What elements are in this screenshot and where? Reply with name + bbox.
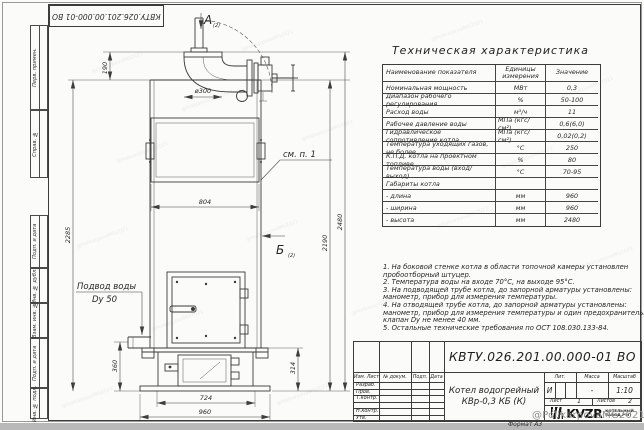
format-label: Формат А3	[508, 421, 542, 428]
stamp-cell-podp-data-1: Подп. и дата	[30, 215, 48, 268]
tech-row-value: 250	[546, 142, 598, 154]
stamp-cell-sprav-no: Справ. №	[30, 110, 48, 178]
tb-header-dokum: № докум.	[379, 372, 411, 382]
tech-row-value: 0,6(6,0)	[546, 118, 598, 130]
watermark-text: @PolikarpovaMG2021	[532, 410, 644, 421]
tech-row-value: 0,3	[546, 82, 598, 94]
tech-row-value: 70-95	[546, 166, 598, 178]
note-line: 5. Остальные технические требования по О…	[383, 325, 639, 333]
tech-row-name: - высота	[383, 214, 496, 226]
tech-row-units: МВт	[496, 82, 546, 94]
tb-mass-label: Масса	[576, 372, 608, 382]
tb-mass-value: -	[576, 382, 608, 398]
tb-sheet-label: Лист	[544, 398, 568, 405]
tech-row-units: %	[496, 154, 546, 166]
tech-row-value: 11	[546, 106, 598, 118]
tech-row-name: - длина	[383, 190, 496, 202]
stamp-cell-perv-primen: Перв. примен.	[30, 25, 48, 110]
tech-row-name: - ширина	[383, 202, 496, 214]
stamp-label: Перв. примен.	[30, 26, 40, 109]
stamp-label: Инв. № подл.	[30, 389, 40, 418]
tech-row-units	[496, 178, 546, 190]
tech-row-value: 50-100	[546, 94, 598, 106]
tech-row-name: Диапазон рабочего регулирования	[383, 94, 496, 106]
stamp-cell-vzam-inv: Взам. инв. №	[30, 303, 48, 338]
tech-table-header-units: Единицы измерения	[496, 65, 546, 82]
tech-table-header-name: Наименование показателя	[383, 65, 496, 82]
tech-row-units: МПа (кгс/см²)	[496, 130, 546, 142]
tech-row-name: Расход воды	[383, 106, 496, 118]
stamp-cell-inv-dubl: Инв. № дубл.	[30, 268, 48, 303]
tb-header-izm-list: Изм. Лист	[354, 372, 379, 382]
tb-header-podp: Подп.	[411, 372, 429, 382]
tech-row-name: Температура воды (вход/выход)	[383, 166, 496, 178]
stamp-label: Справ. №	[30, 111, 40, 177]
top-doc-number-box: КВТУ.026.201.00.000-01 ВО	[49, 5, 164, 27]
tech-row-name: Габариты котла	[383, 178, 496, 190]
tech-row-value: 960	[546, 190, 598, 202]
tech-row-value	[546, 178, 598, 190]
tech-table-title: Техническая характеристика	[382, 44, 599, 57]
tech-row-units: °С	[496, 142, 546, 154]
stamp-label: Взам. инв. №	[30, 304, 40, 337]
tb-row-utv: Утв.	[354, 415, 381, 422]
tb-doc-number: КВТУ.026.201.00.000-01 ВО	[444, 342, 641, 372]
stamp-label: Подп. и дата	[30, 216, 40, 267]
tech-table-header-value: Значение	[546, 65, 598, 82]
tech-row-value: 2480	[546, 214, 598, 226]
stamp-cell-inv-podl: Инв. № подл.	[30, 388, 48, 419]
tech-table: Наименование показателя Единицы измерени…	[382, 64, 601, 227]
tech-row-units: °С	[496, 166, 546, 178]
tb-scale-label: Масштаб	[608, 372, 641, 382]
tb-lit-value: И	[544, 382, 555, 398]
tech-row-value: 960	[546, 202, 598, 214]
tb-lit-label: Лит.	[544, 372, 576, 382]
top-doc-number: КВТУ.026.201.00.000-01 ВО	[52, 12, 161, 21]
tb-scale-value: 1:10	[608, 382, 641, 398]
tb-product-name: Котел водогрейный КВр-0,3 КБ (К)	[444, 372, 544, 421]
technical-notes: 1. На боковой стенке котла в области топ…	[383, 264, 639, 332]
tech-row-value: 0,02(0,2)	[546, 130, 598, 142]
sheet-page: КВТУ.026.201.00.000-01 ВО Перв. примен. …	[0, 0, 644, 423]
tb-header-data: Дата	[429, 372, 444, 382]
stamp-label: Подп. и дата	[30, 339, 40, 387]
tb-product-line1: Котел водогрейный	[449, 386, 539, 397]
tech-row-units: мм	[496, 202, 546, 214]
drawing-sheet: { "page": { "doc_number": "КВТУ.026.201.…	[0, 0, 644, 430]
stamp-cell-podp-data-2: Подп. и дата	[30, 338, 48, 388]
tb-sheets-label: Листов	[592, 398, 620, 405]
tech-row-units: мм	[496, 190, 546, 202]
tb-sheets-value: 2	[620, 398, 640, 405]
stamp-label: Инв. № дубл.	[30, 269, 40, 302]
tb-sheet-value: 1	[568, 398, 590, 405]
tech-row-units: мм	[496, 214, 546, 226]
tech-row-value: 80	[546, 154, 598, 166]
tech-row-units: %	[496, 94, 546, 106]
tb-product-line2: КВр-0,3 КБ (К)	[462, 397, 527, 408]
